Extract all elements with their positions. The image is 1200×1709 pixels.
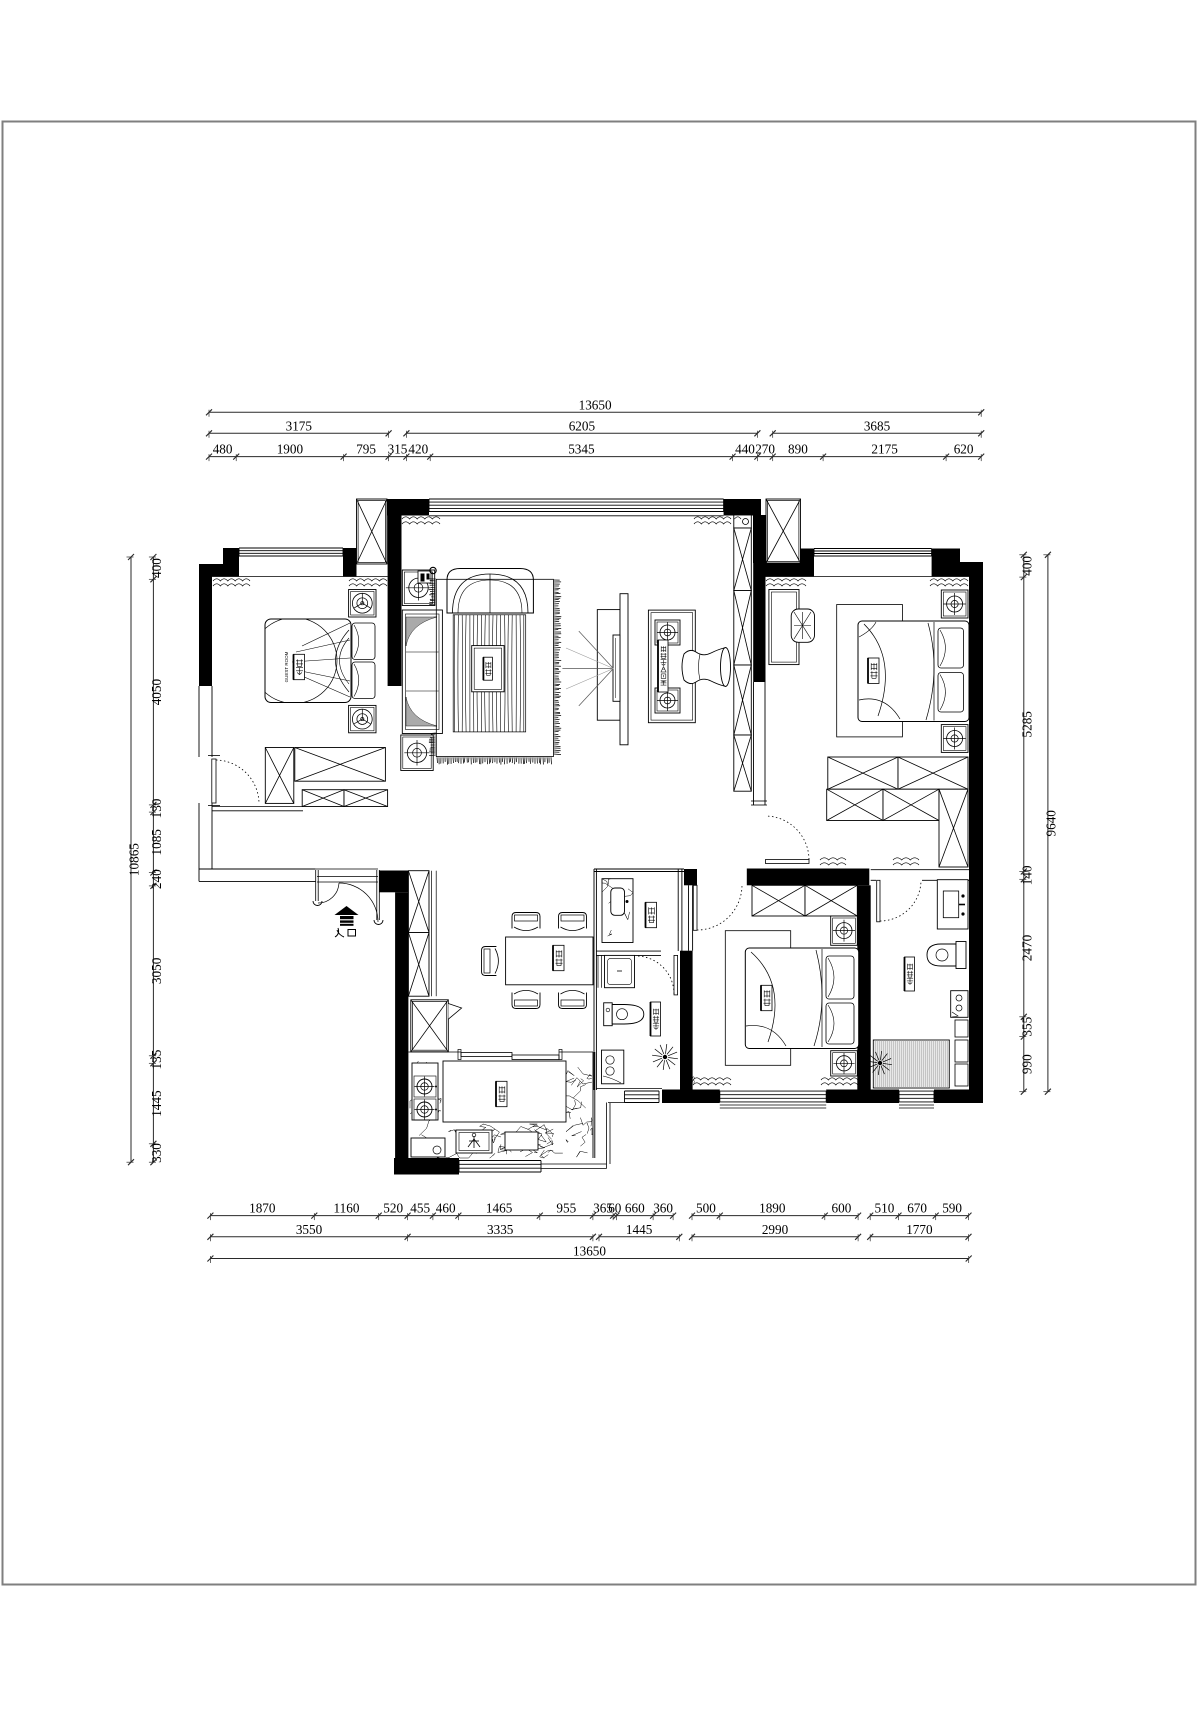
svg-text:9640: 9640 bbox=[1043, 810, 1058, 837]
svg-text:2175: 2175 bbox=[871, 442, 898, 457]
svg-text:955: 955 bbox=[556, 1201, 576, 1216]
svg-text:2990: 2990 bbox=[762, 1222, 789, 1237]
svg-text:590: 590 bbox=[942, 1201, 962, 1216]
svg-text:13650: 13650 bbox=[573, 1244, 606, 1259]
svg-text:2470: 2470 bbox=[1019, 934, 1034, 961]
svg-text:600: 600 bbox=[832, 1201, 852, 1216]
svg-text:3175: 3175 bbox=[286, 418, 313, 433]
svg-text:1900: 1900 bbox=[277, 442, 304, 457]
svg-text:130: 130 bbox=[149, 798, 164, 818]
svg-text:SS: SS bbox=[691, 1076, 697, 1084]
svg-text:355: 355 bbox=[1019, 1016, 1034, 1036]
svg-text:990: 990 bbox=[1019, 1054, 1034, 1074]
svg-text:1445: 1445 bbox=[626, 1222, 653, 1237]
svg-text:1160: 1160 bbox=[334, 1201, 360, 1216]
svg-text:500: 500 bbox=[696, 1201, 716, 1216]
svg-text:3335: 3335 bbox=[487, 1222, 514, 1237]
svg-text:270: 270 bbox=[755, 442, 775, 457]
svg-text:1465: 1465 bbox=[486, 1201, 513, 1216]
svg-text:400: 400 bbox=[1019, 556, 1034, 576]
svg-text:520: 520 bbox=[383, 1201, 403, 1216]
svg-text:480: 480 bbox=[213, 442, 233, 457]
svg-text:13650: 13650 bbox=[579, 397, 612, 412]
svg-text:10865: 10865 bbox=[127, 843, 142, 876]
svg-text:440: 440 bbox=[735, 442, 755, 457]
svg-text:1870: 1870 bbox=[249, 1201, 276, 1216]
svg-text:1770: 1770 bbox=[906, 1222, 933, 1237]
svg-text:1445: 1445 bbox=[149, 1090, 164, 1117]
svg-text:455: 455 bbox=[410, 1201, 430, 1216]
svg-text:510: 510 bbox=[875, 1201, 895, 1216]
svg-text:890: 890 bbox=[788, 442, 808, 457]
svg-text:60: 60 bbox=[608, 1201, 622, 1216]
svg-text:140: 140 bbox=[1019, 865, 1034, 885]
svg-text:1890: 1890 bbox=[759, 1201, 786, 1216]
svg-text:6205: 6205 bbox=[569, 418, 596, 433]
svg-text:660: 660 bbox=[625, 1201, 645, 1216]
svg-text:240: 240 bbox=[149, 869, 164, 889]
svg-text:330: 330 bbox=[149, 1143, 164, 1163]
svg-text:5285: 5285 bbox=[1019, 711, 1034, 738]
svg-text:360: 360 bbox=[653, 1201, 673, 1216]
svg-text:460: 460 bbox=[436, 1201, 456, 1216]
svg-text:3050: 3050 bbox=[149, 957, 164, 984]
svg-text:1085: 1085 bbox=[149, 829, 164, 856]
svg-text:5345: 5345 bbox=[568, 442, 595, 457]
svg-text:GUEST ROOM: GUEST ROOM bbox=[284, 651, 289, 682]
svg-text:620: 620 bbox=[954, 442, 974, 457]
svg-text:795: 795 bbox=[356, 442, 376, 457]
svg-text:135: 135 bbox=[149, 1049, 164, 1069]
svg-text:670: 670 bbox=[907, 1201, 927, 1216]
svg-text:3550: 3550 bbox=[296, 1222, 323, 1237]
svg-text:4050: 4050 bbox=[149, 679, 164, 706]
svg-text:400: 400 bbox=[149, 558, 164, 578]
svg-text:3685: 3685 bbox=[864, 418, 891, 433]
svg-text:315: 315 bbox=[388, 442, 408, 457]
svg-text:420: 420 bbox=[408, 442, 428, 457]
